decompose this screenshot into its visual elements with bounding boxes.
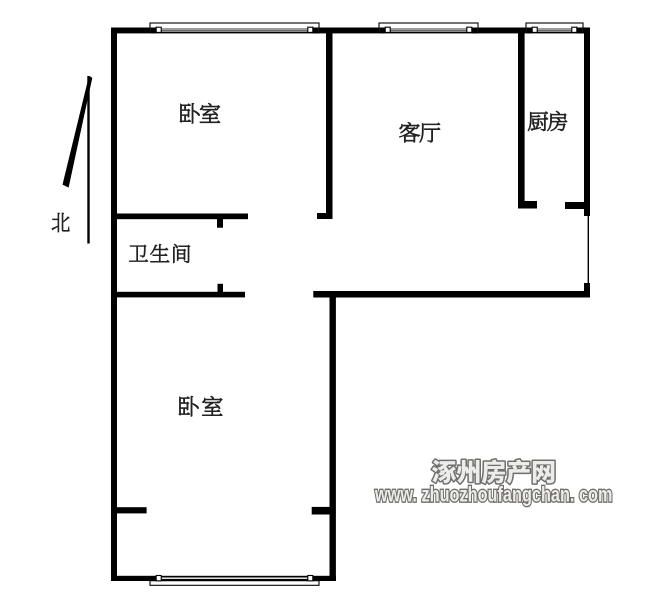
svg-text:www. zhuozhoufangchan. com: www. zhuozhoufangchan. com: [374, 484, 612, 507]
